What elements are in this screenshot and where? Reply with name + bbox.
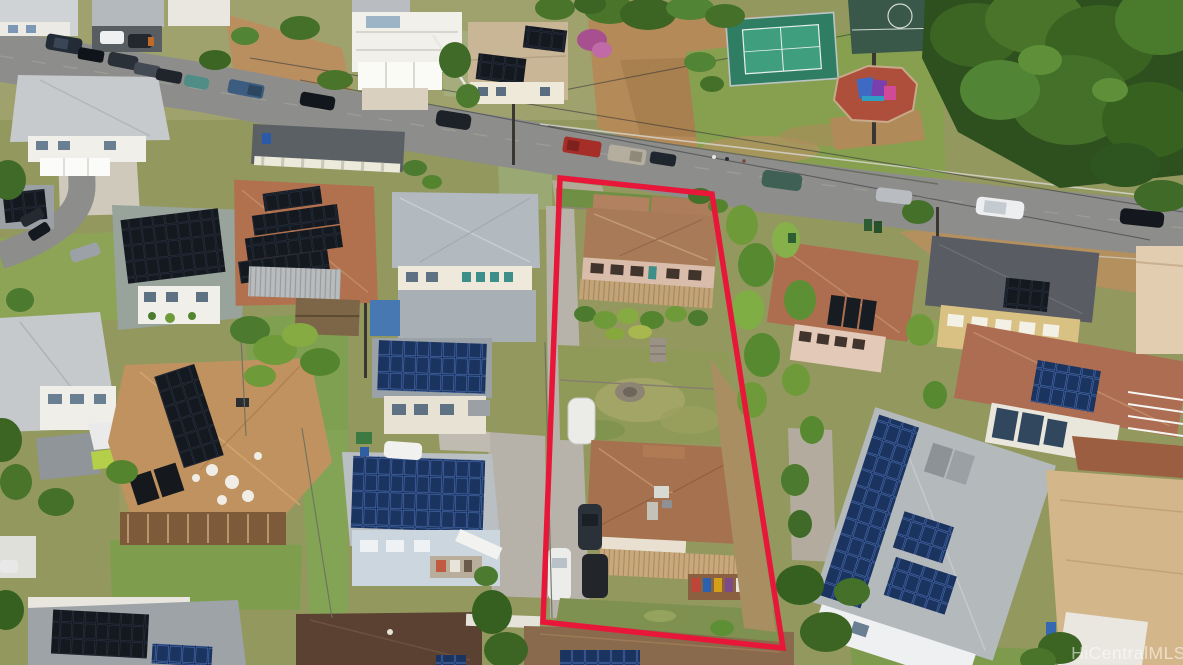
aerial-photo: HiCentralMLS (0, 0, 1183, 665)
house-big-white-left (10, 75, 170, 176)
house-top-left-white (0, 0, 78, 36)
house-bottom-left-solar (28, 597, 246, 665)
house-gray-hip-center (370, 192, 540, 342)
house-blue-walls-solar (342, 452, 502, 586)
house-solar-wing (372, 338, 492, 434)
aerial-photo-canvas: HiCentralMLS (0, 0, 1183, 665)
house-bottom-dark-brown (296, 612, 482, 665)
teal-door (648, 266, 657, 280)
house-colonnade (251, 124, 405, 173)
blue-tarp (370, 300, 400, 336)
watermark: HiCentralMLS (1071, 643, 1183, 663)
flat-roof-building (168, 0, 230, 26)
house-sage-solar (112, 205, 248, 330)
tennis-court (726, 13, 838, 86)
house-left-edge-mid (0, 312, 118, 432)
house-carport (92, 0, 164, 52)
house-cream-solar (468, 22, 568, 104)
playground (834, 66, 917, 122)
house-left-edge-lower (0, 536, 36, 578)
covered-vehicle (568, 398, 595, 444)
